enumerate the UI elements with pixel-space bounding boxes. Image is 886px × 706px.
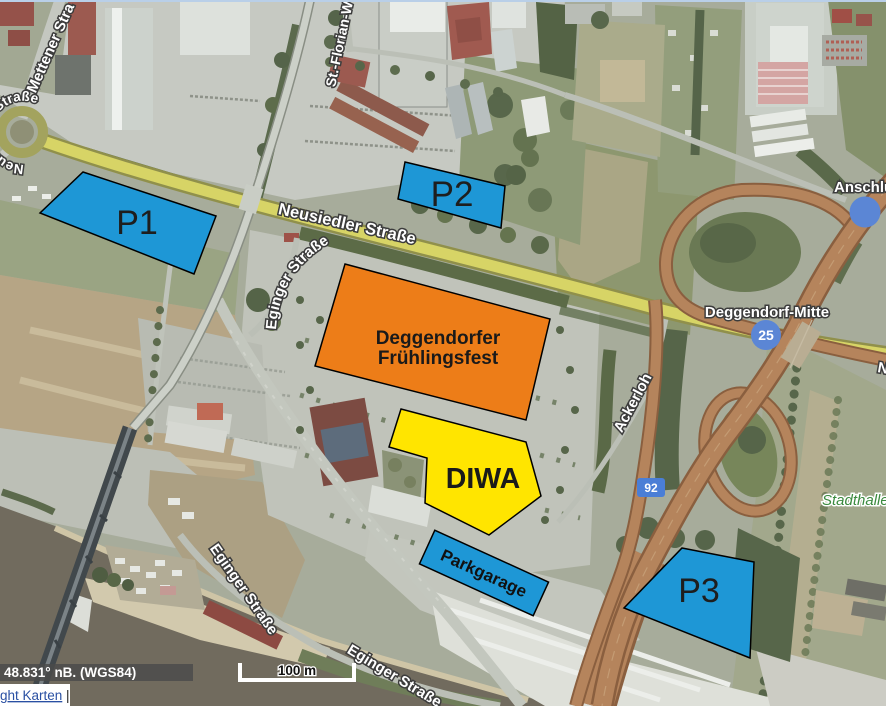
svg-text:P3: P3 (678, 572, 720, 610)
svg-text:P2: P2 (431, 175, 474, 214)
svg-text:Deggendorf-Mitte: Deggendorf-Mitte (705, 304, 829, 321)
svg-text:25: 25 (758, 327, 774, 343)
svg-text:Anschluss: Anschluss (834, 179, 886, 196)
svg-text:ght Karten |: ght Karten | (0, 688, 70, 703)
svg-text:100 m: 100 m (278, 663, 316, 678)
svg-text:DIWA: DIWA (446, 463, 520, 495)
svg-text:48.831° nB. (WGS84): 48.831° nB. (WGS84) (4, 665, 136, 680)
svg-text:P1: P1 (116, 204, 158, 242)
svg-text:Deggendorfer: Deggendorfer (376, 328, 501, 349)
svg-text:Frühlingsfest: Frühlingsfest (378, 348, 499, 369)
svg-text:Stadthalle: Stadthalle (822, 492, 886, 509)
svg-text:92: 92 (644, 481, 658, 495)
